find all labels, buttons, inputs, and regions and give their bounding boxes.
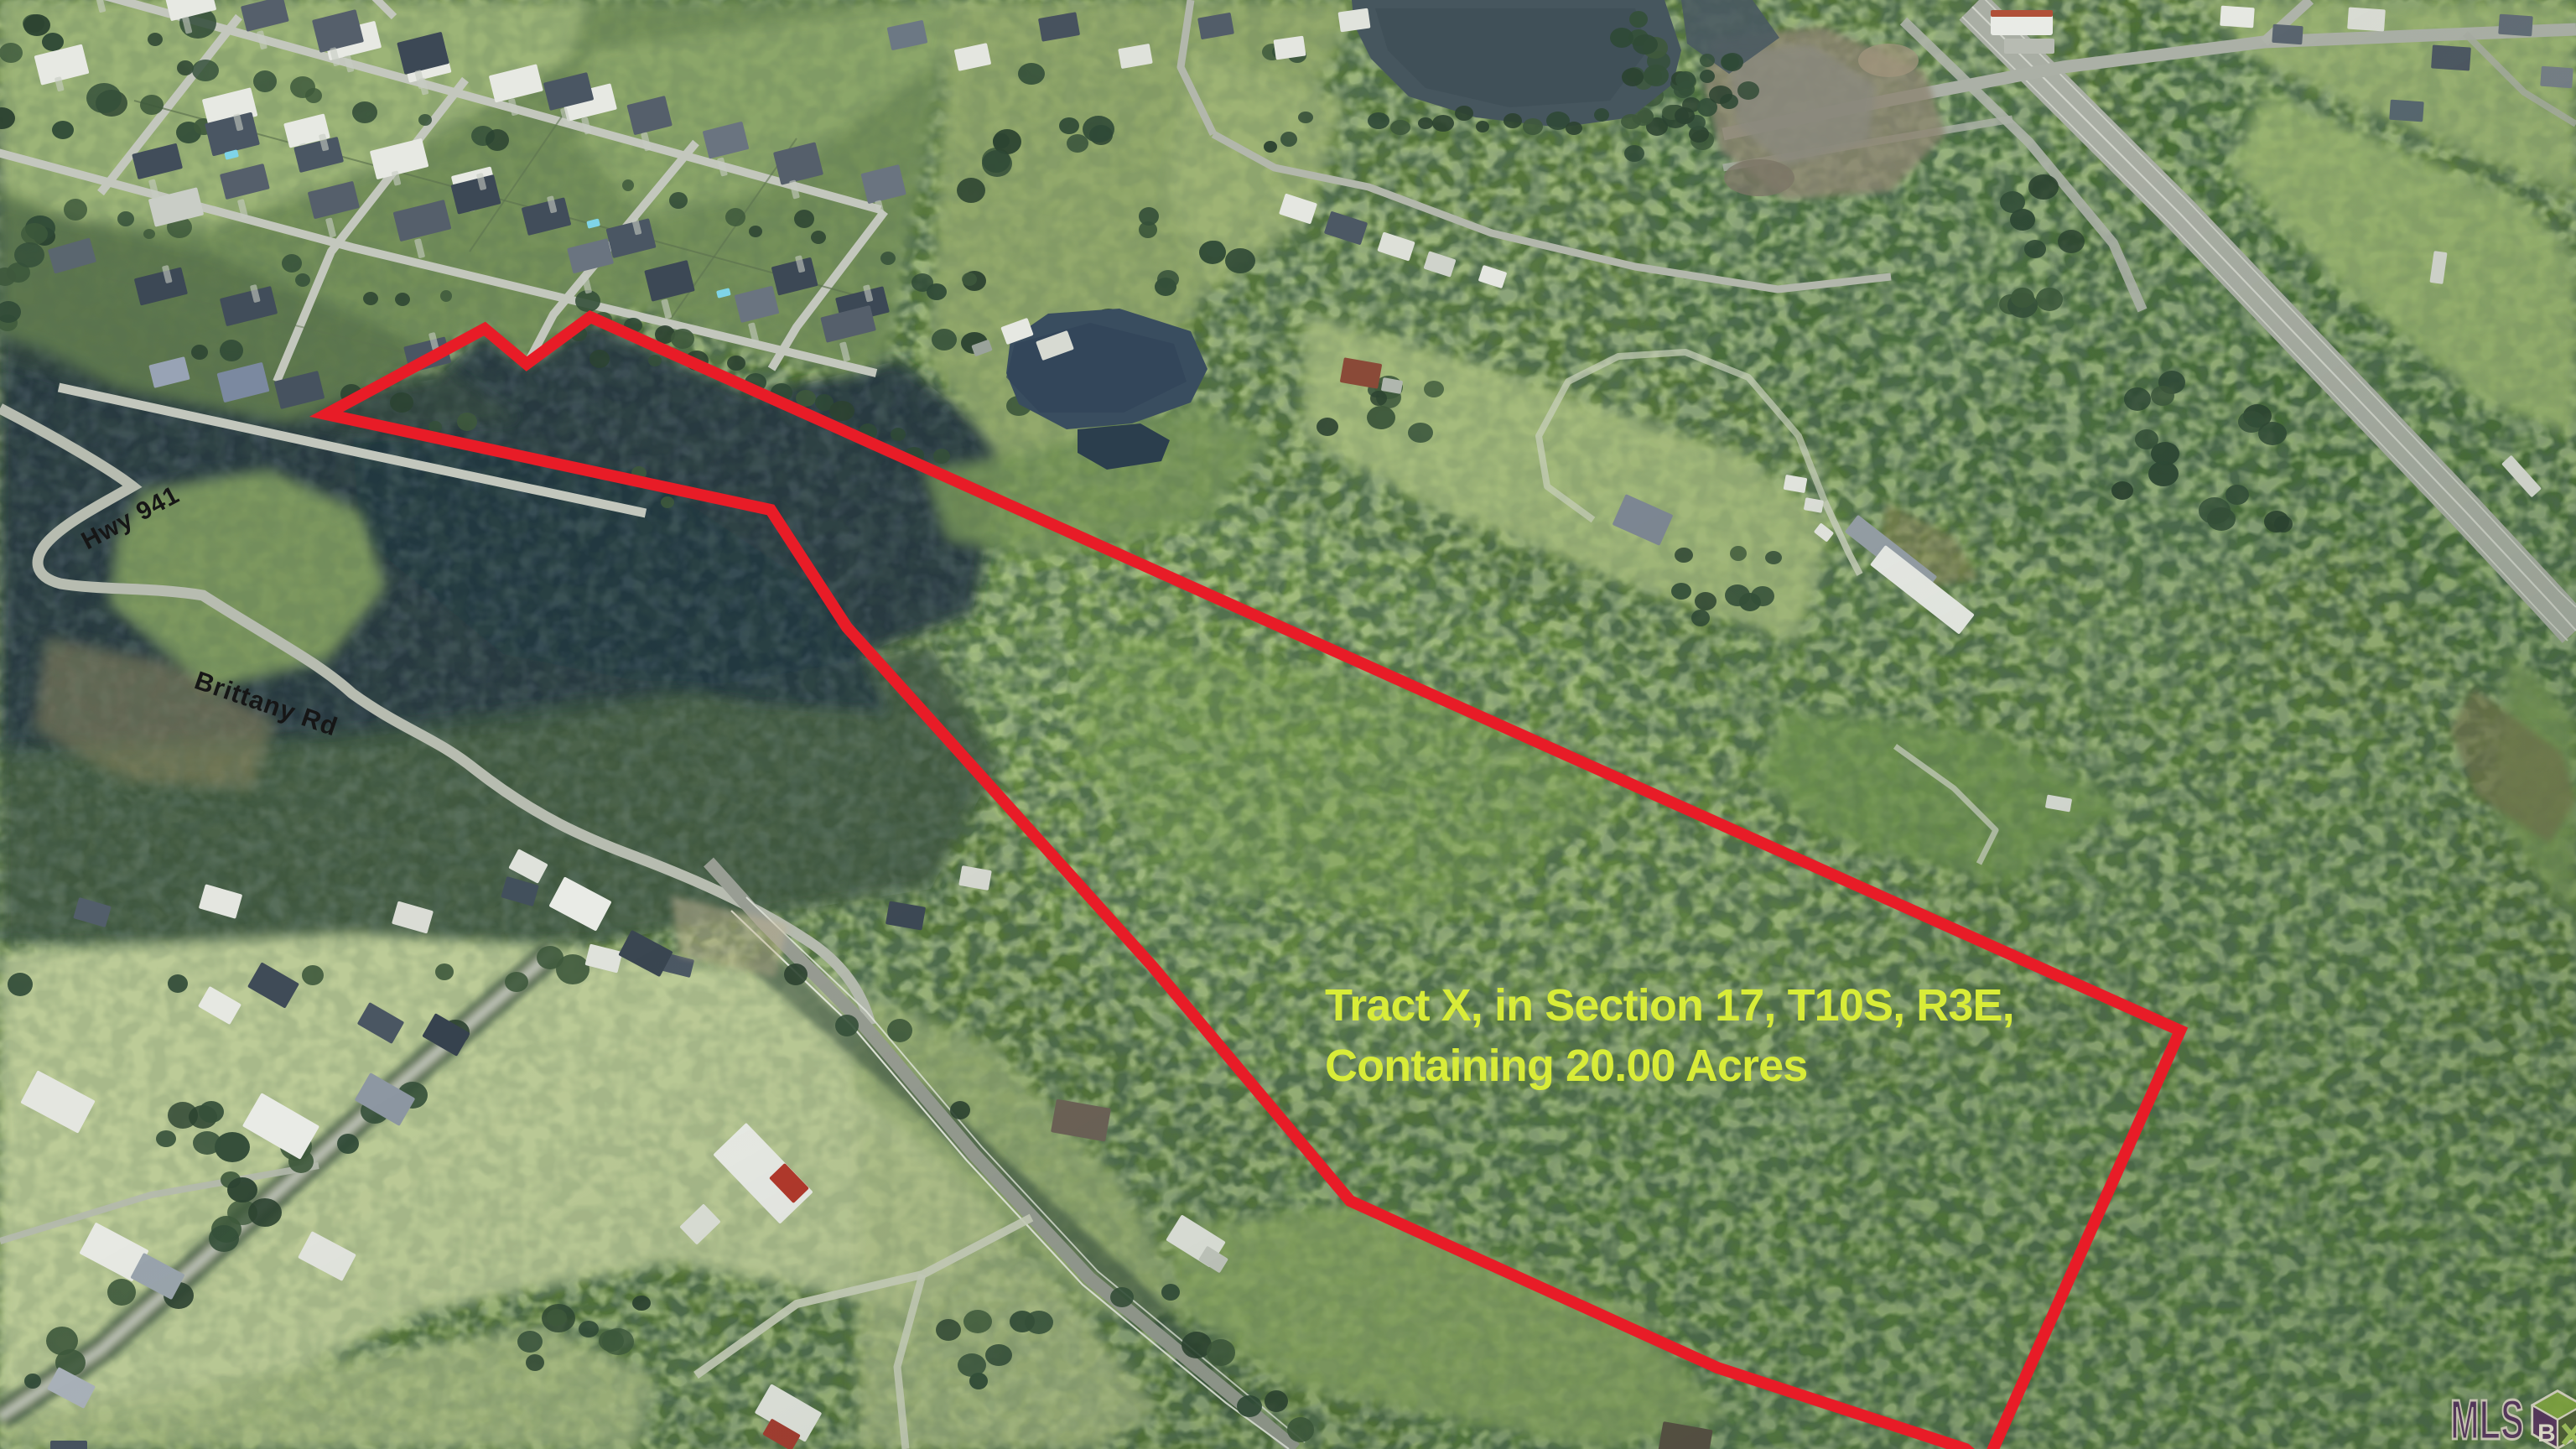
svg-text:B: B bbox=[2537, 1420, 2556, 1447]
svg-text:MLS: MLS bbox=[2450, 1389, 2524, 1449]
svg-text:Tract X, in Section 17, T10S,: Tract X, in Section 17, T10S, R3E, bbox=[1325, 980, 2014, 1031]
svg-text:Containing 20.00 Acres: Containing 20.00 Acres bbox=[1325, 1041, 1807, 1091]
